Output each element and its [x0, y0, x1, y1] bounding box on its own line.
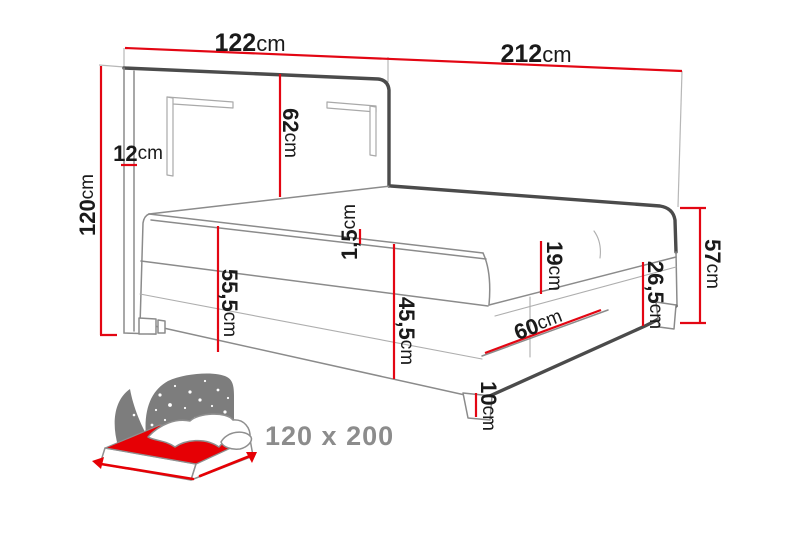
dimension-labels: 122cm 212cm 12cm 120cm 62cm 1,5cm 55,5cm… [75, 29, 726, 431]
headboard-width-label: 122cm [214, 29, 285, 57]
bed-dimension-diagram: 122cm 212cm 12cm 120cm 62cm 1,5cm 55,5cm… [0, 0, 800, 533]
left-strip-horizontal [167, 97, 233, 108]
topper-thickness-label: 1,5cm [337, 204, 362, 260]
base-thickness-label: 26,5cm [644, 261, 669, 329]
bed-size-icon [92, 374, 257, 480]
foot-total-height-label: 57cm [701, 239, 726, 289]
headboard-light-strips [167, 97, 376, 176]
total-length-label: 212cm [500, 40, 571, 68]
base-top-height-label: 45,5cm [395, 297, 420, 365]
right-strip-vertical [370, 106, 376, 156]
leg-height-label: 10cm [477, 381, 502, 431]
left-strip-vertical [167, 97, 173, 176]
headboard-above-mattress-label: 62cm [279, 108, 304, 158]
mattress-top-height-label: 55,5cm [218, 269, 243, 337]
headboard-total-height-label: 120cm [75, 174, 100, 236]
headboard-depth-label: 12cm [113, 141, 163, 166]
bed-dimension-diagram-page: 122cm 212cm 12cm 120cm 62cm 1,5cm 55,5cm… [0, 0, 800, 533]
size-badge: 120 x 200 [265, 421, 394, 451]
headboard-leg [139, 318, 156, 334]
right-strip-horizontal [327, 102, 376, 112]
headboard-leg-back [158, 320, 165, 333]
bed-drawing [124, 68, 677, 420]
mattress-thickness-label: 19cm [543, 241, 568, 291]
dim-line-total-length [125, 48, 682, 71]
